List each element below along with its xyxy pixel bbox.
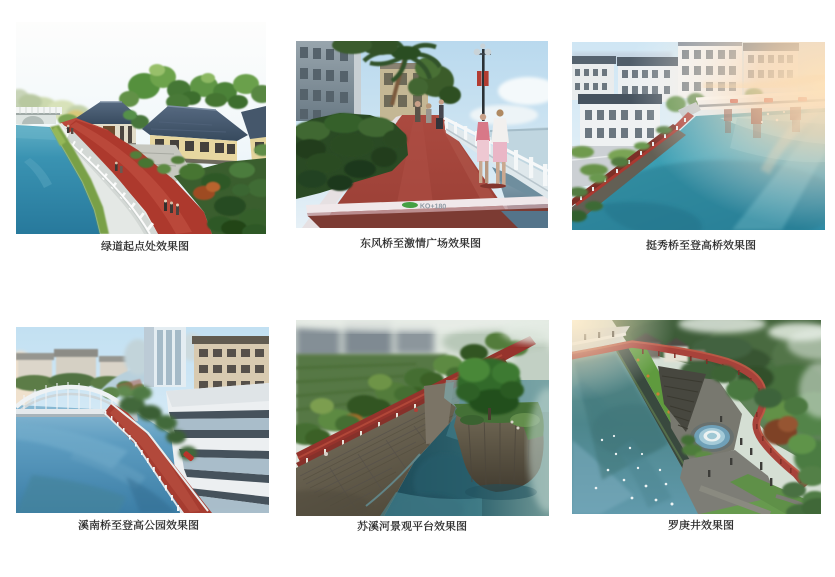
svg-text:KO+180: KO+180 (420, 203, 446, 210)
